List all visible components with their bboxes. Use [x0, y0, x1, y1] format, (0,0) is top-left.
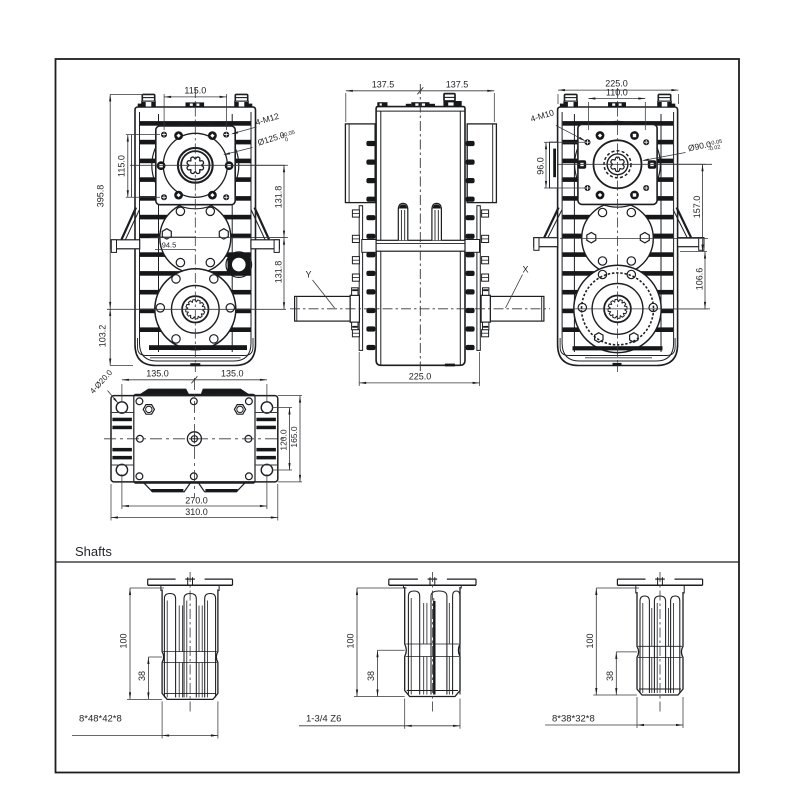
svg-text:94.5: 94.5 [162, 240, 177, 249]
svg-text:100: 100 [585, 633, 595, 648]
svg-text:310.0: 310.0 [185, 507, 208, 517]
svg-text:103.2: 103.2 [98, 325, 108, 348]
svg-text:38: 38 [366, 671, 376, 681]
svg-text:225.0: 225.0 [409, 372, 432, 382]
svg-text:106.6: 106.6 [694, 268, 704, 291]
svg-text:135.0: 135.0 [221, 368, 244, 378]
svg-text:157.0: 157.0 [692, 196, 702, 219]
svg-text:131.8: 131.8 [273, 186, 283, 209]
svg-text:8*48*42*8: 8*48*42*8 [79, 714, 122, 725]
svg-text:38: 38 [605, 671, 615, 681]
svg-text:395.8: 395.8 [96, 185, 106, 208]
svg-text:165.0: 165.0 [289, 426, 299, 448]
svg-text:120.0: 120.0 [279, 429, 289, 451]
svg-text:270.0: 270.0 [185, 495, 208, 505]
svg-text:8*38*32*8: 8*38*32*8 [552, 714, 595, 725]
svg-text:Shafts: Shafts [75, 544, 112, 559]
svg-text:131.8: 131.8 [273, 261, 283, 284]
svg-text:1-3/4 Z6: 1-3/4 Z6 [306, 714, 341, 725]
svg-text:135.0: 135.0 [146, 368, 169, 378]
svg-text:100: 100 [346, 633, 356, 648]
svg-text:X: X [522, 265, 528, 275]
svg-text:96.0: 96.0 [536, 157, 546, 175]
svg-text:Y: Y [305, 270, 311, 280]
svg-text:137.5: 137.5 [372, 79, 395, 89]
svg-text:137.5: 137.5 [446, 79, 469, 89]
svg-text:115.0: 115.0 [184, 86, 206, 96]
svg-text:115.0: 115.0 [117, 155, 127, 177]
svg-text:100: 100 [119, 633, 129, 648]
svg-text:110.0: 110.0 [606, 87, 628, 97]
svg-text:38: 38 [137, 671, 147, 681]
